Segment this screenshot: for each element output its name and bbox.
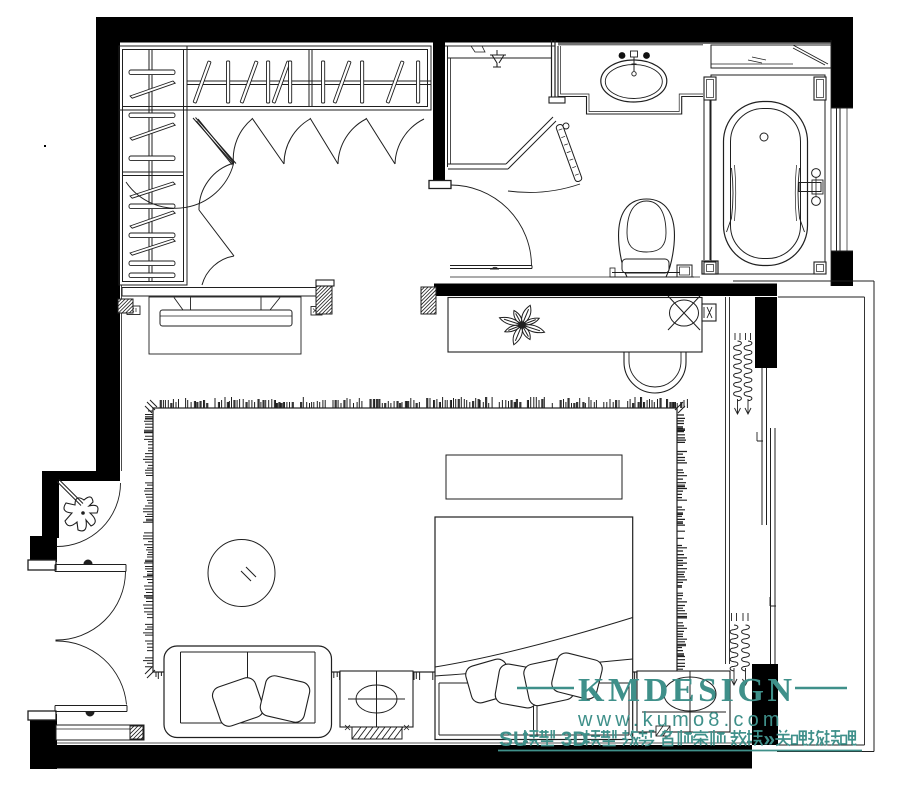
svg-text:SU: SU — [499, 728, 528, 751]
svg-text:www.kumo8.com: www.kumo8.com — [577, 709, 784, 731]
svg-text:3D: 3D — [561, 728, 588, 751]
svg-text:KMDESIGN: KMDESIGN — [578, 672, 796, 709]
svg-text:»: » — [763, 728, 775, 751]
